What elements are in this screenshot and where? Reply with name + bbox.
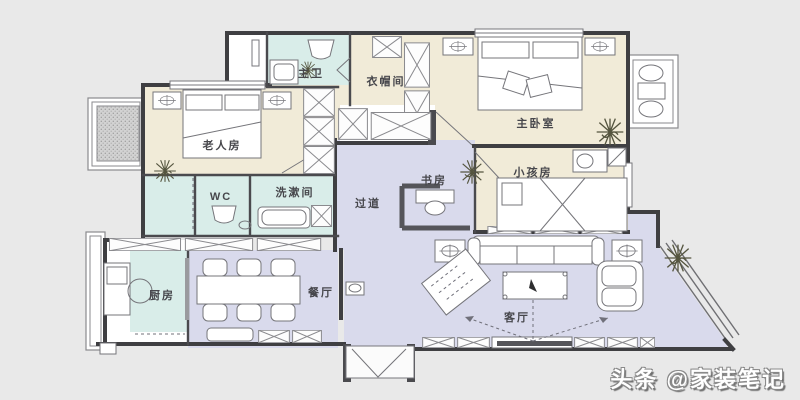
- armchair: [597, 261, 643, 311]
- elder-wardrobe: [304, 147, 335, 174]
- corner-unit: [100, 343, 116, 354]
- label-master-bath: 主卫: [298, 66, 324, 80]
- dining-chair: [271, 259, 295, 276]
- bay-seat-hatch: [97, 106, 139, 161]
- duct-area: [227, 33, 267, 87]
- tv-wall-cabinet: [423, 337, 455, 348]
- sofa: [468, 236, 604, 265]
- kitchen-cabinet: [109, 238, 180, 250]
- elder-wardrobe: [304, 118, 335, 146]
- label-dining: 餐厅: [307, 285, 334, 299]
- duct-window: [252, 40, 259, 66]
- label-kids-room: 小孩房: [513, 165, 553, 179]
- kitchen-balcony: [86, 232, 105, 350]
- study-chair: [425, 201, 445, 215]
- watermark: 头条 @家装笔记: [610, 362, 786, 394]
- dining-chair: [237, 304, 261, 321]
- toilet: [308, 40, 334, 59]
- floor-plan: 主卫 衣帽间 主卧室 老人房 WC 洗漱间 过道 书房 小孩房 厨房 餐厅 客厅: [0, 0, 800, 400]
- label-living: 客厅: [503, 310, 530, 324]
- dining-sideboard: [259, 330, 290, 342]
- kids-bed: [497, 178, 627, 231]
- label-elder-room: 老人房: [202, 138, 242, 152]
- toilet: [212, 206, 236, 223]
- label-wc: WC: [210, 191, 232, 203]
- label-master-bedroom: 主卧室: [517, 116, 556, 130]
- washing-machine: [311, 205, 331, 226]
- label-kitchen: 厨房: [149, 288, 175, 302]
- shower-room-floor: [143, 175, 195, 235]
- dining-chair: [203, 304, 227, 321]
- dining-chair: [237, 259, 261, 276]
- tv-wall-cabinet: [575, 337, 605, 348]
- hall-closet: [371, 113, 431, 140]
- cloakroom-cabinet: [405, 43, 430, 87]
- left-bay-window: [88, 98, 144, 170]
- right-bay-window: [628, 55, 678, 128]
- floor-plan-canvas: 主卫 衣帽间 主卧室 老人房 WC 洗漱间 过道 书房 小孩房 厨房 餐厅 客厅…: [0, 0, 800, 400]
- kitchen-counter: [104, 263, 130, 315]
- dining-table: [197, 276, 300, 304]
- master-bed: [478, 37, 582, 110]
- dining-cabinet: [185, 238, 252, 250]
- label-washroom: 洗漱间: [276, 185, 315, 199]
- tv-wall-cabinet: [640, 337, 654, 348]
- dining-cabinet: [257, 238, 320, 250]
- label-cloakroom: 衣帽间: [367, 74, 406, 88]
- wc-floor: [195, 175, 250, 235]
- elder-wardrobe: [304, 89, 335, 117]
- kitchen-sliding-door: [185, 258, 189, 320]
- hall-closet: [339, 109, 368, 140]
- kids-desk: [573, 150, 607, 172]
- dining-chair: [271, 304, 295, 321]
- tv-wall-cabinet: [608, 337, 638, 348]
- dining-chair: [203, 259, 227, 276]
- coffee-table: [503, 272, 567, 299]
- tv-wall-cabinet: [458, 337, 490, 348]
- cloakroom-cabinet: [373, 36, 402, 57]
- label-hallway: 过道: [355, 196, 381, 210]
- sideboard: [207, 328, 253, 341]
- label-study: 书房: [421, 173, 447, 187]
- tv: [497, 341, 572, 346]
- dining-sideboard: [293, 330, 322, 342]
